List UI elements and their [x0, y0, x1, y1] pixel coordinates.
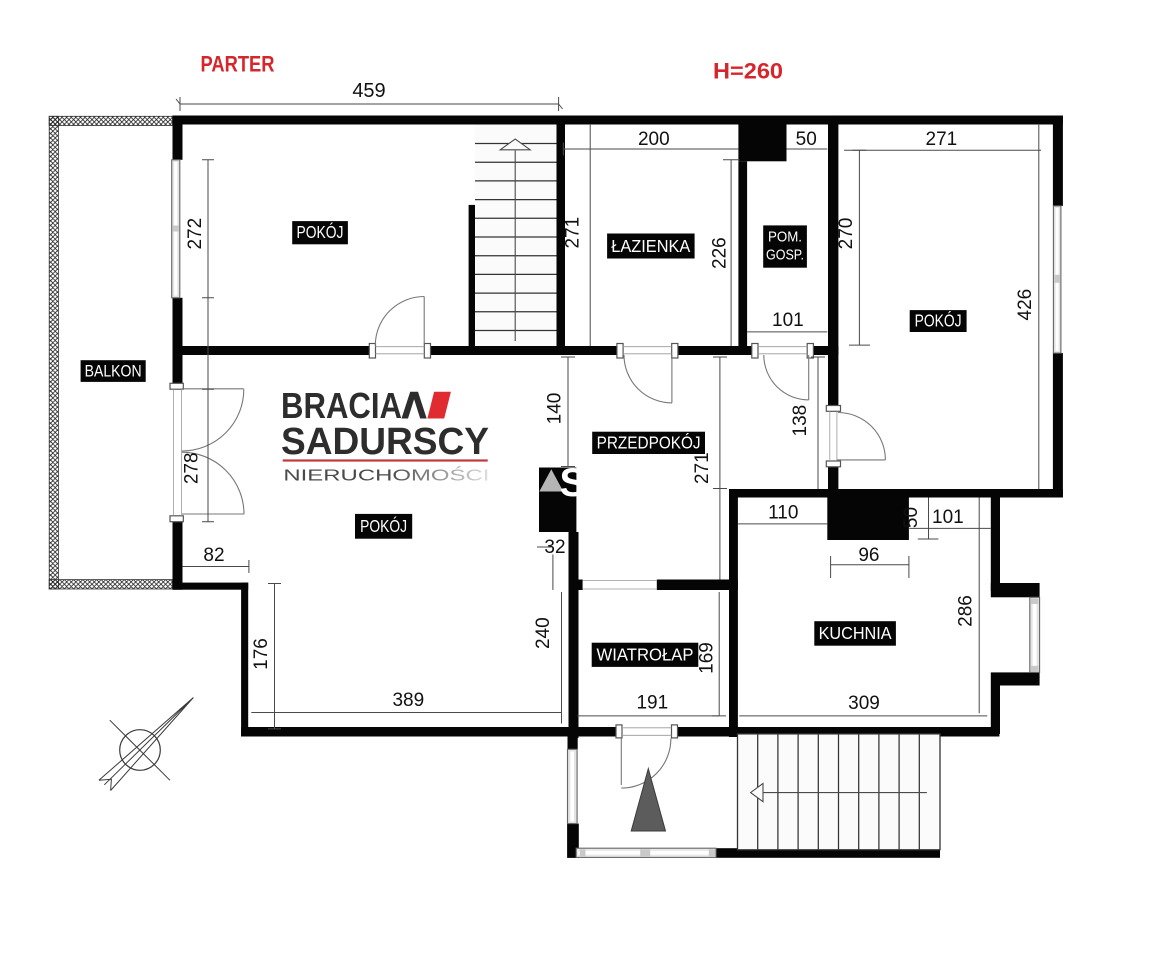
svg-text:271: 271: [692, 452, 713, 484]
svg-text:270: 270: [836, 218, 857, 250]
svg-text:KUCHNIA: KUCHNIA: [819, 623, 892, 643]
svg-text:240: 240: [533, 617, 554, 649]
svg-text:271: 271: [563, 217, 584, 249]
svg-text:101: 101: [772, 310, 804, 331]
svg-text:ŁAZIENKA: ŁAZIENKA: [611, 236, 690, 256]
svg-text:286: 286: [956, 595, 977, 627]
svg-text:BALKON: BALKON: [85, 362, 142, 380]
svg-text:82: 82: [203, 545, 224, 566]
svg-text:101: 101: [932, 507, 964, 528]
svg-text:278: 278: [182, 452, 203, 484]
svg-text:50: 50: [796, 129, 817, 150]
svg-text:H=260: H=260: [713, 59, 783, 84]
svg-text:SADURSCY: SADURSCY: [281, 421, 489, 463]
svg-text:PRZEDPOKÓJ: PRZEDPOKÓJ: [597, 432, 701, 453]
svg-text:S: S: [560, 461, 587, 505]
svg-text:50: 50: [901, 507, 922, 528]
svg-text:191: 191: [636, 693, 668, 714]
svg-text:POM.: POM.: [768, 230, 802, 246]
svg-text:426: 426: [1015, 289, 1036, 321]
svg-text:BRACIA: BRACIA: [281, 385, 402, 426]
svg-text:POKÓJ: POKÓJ: [297, 221, 344, 242]
svg-text:459: 459: [352, 80, 385, 102]
svg-text:110: 110: [768, 503, 798, 524]
svg-text:POKÓJ: POKÓJ: [915, 310, 962, 331]
svg-text:32: 32: [544, 537, 565, 558]
svg-text:96: 96: [858, 545, 879, 566]
svg-text:POKÓJ: POKÓJ: [360, 515, 407, 536]
svg-text:WIATROŁAP: WIATROŁAP: [597, 645, 694, 665]
svg-text:226: 226: [710, 237, 731, 269]
svg-text:GOSP.: GOSP.: [766, 248, 804, 264]
svg-text:PARTER: PARTER: [201, 52, 275, 77]
svg-text:176: 176: [251, 638, 272, 670]
svg-text:272: 272: [185, 218, 206, 250]
svg-text:271: 271: [926, 129, 958, 150]
svg-text:140: 140: [545, 393, 566, 425]
svg-text:200: 200: [638, 129, 670, 150]
svg-text:389: 389: [392, 690, 424, 711]
svg-text:169: 169: [697, 642, 718, 674]
svg-text:309: 309: [848, 693, 880, 714]
svg-text:138: 138: [790, 405, 811, 437]
